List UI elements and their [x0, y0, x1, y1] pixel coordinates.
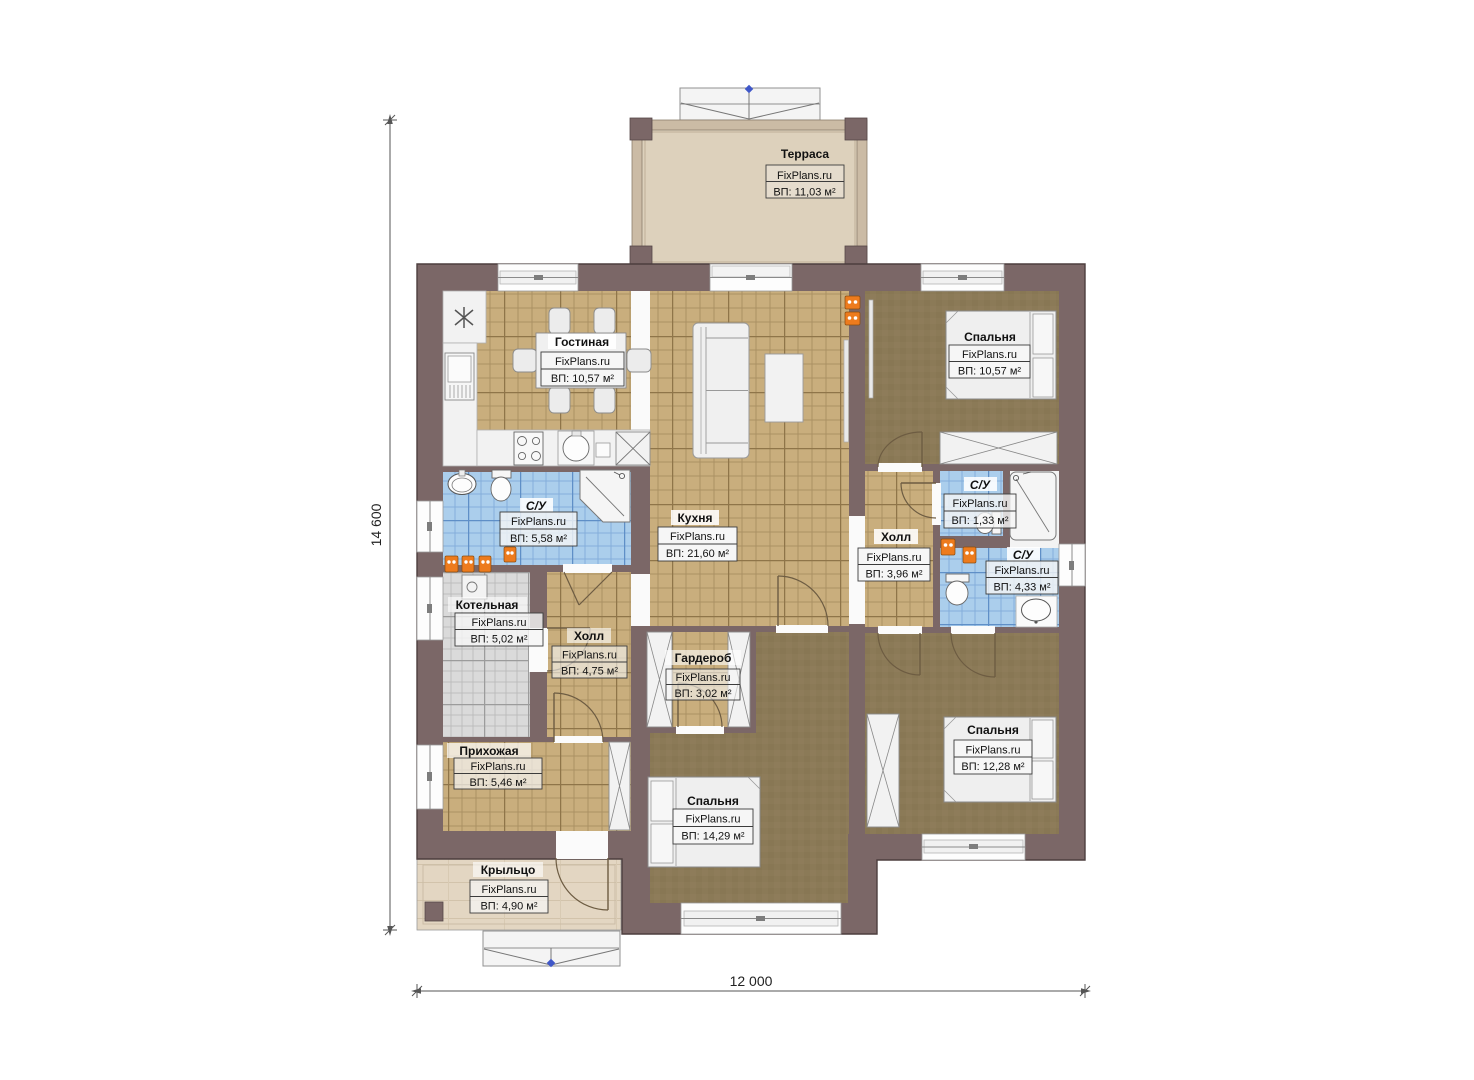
- svg-text:Крыльцо: Крыльцо: [481, 863, 536, 877]
- svg-text:ВП: 4,75 м²: ВП: 4,75 м²: [561, 666, 618, 678]
- svg-text:ВП: 1,33 м²: ВП: 1,33 м²: [951, 515, 1008, 527]
- svg-text:FixPlans.ru: FixPlans.ru: [470, 761, 525, 773]
- svg-text:ВП: 14,29 м²: ВП: 14,29 м²: [681, 831, 745, 843]
- svg-text:FixPlans.ru: FixPlans.ru: [866, 552, 921, 564]
- svg-text:Спальня: Спальня: [687, 794, 739, 808]
- svg-text:12 000: 12 000: [730, 973, 773, 989]
- svg-text:ВП: 21,60 м²: ВП: 21,60 м²: [666, 548, 730, 560]
- svg-text:Терраса: Терраса: [781, 147, 830, 161]
- svg-text:С/У: С/У: [526, 499, 547, 513]
- svg-text:FixPlans.ru: FixPlans.ru: [562, 650, 617, 662]
- svg-text:FixPlans.ru: FixPlans.ru: [962, 349, 1017, 361]
- svg-text:Холл: Холл: [574, 629, 604, 643]
- svg-text:FixPlans.ru: FixPlans.ru: [685, 814, 740, 826]
- svg-text:FixPlans.ru: FixPlans.ru: [670, 531, 725, 543]
- svg-text:ВП: 5,58 м²: ВП: 5,58 м²: [510, 533, 567, 545]
- svg-text:ВП: 12,28 м²: ВП: 12,28 м²: [961, 761, 1025, 773]
- svg-text:С/У: С/У: [1013, 548, 1034, 562]
- svg-text:Гостиная: Гостиная: [555, 335, 609, 349]
- svg-text:ВП: 3,02 м²: ВП: 3,02 м²: [674, 688, 731, 700]
- svg-text:Спальня: Спальня: [964, 330, 1016, 344]
- svg-text:ВП: 10,57 м²: ВП: 10,57 м²: [551, 373, 615, 385]
- svg-text:FixPlans.ru: FixPlans.ru: [994, 565, 1049, 577]
- svg-text:FixPlans.ru: FixPlans.ru: [481, 884, 536, 896]
- svg-text:FixPlans.ru: FixPlans.ru: [777, 170, 832, 182]
- svg-text:Холл: Холл: [881, 530, 911, 544]
- svg-text:Кухня: Кухня: [677, 511, 712, 525]
- svg-text:FixPlans.ru: FixPlans.ru: [675, 672, 730, 684]
- svg-text:Котельная: Котельная: [456, 598, 519, 612]
- svg-text:FixPlans.ru: FixPlans.ru: [555, 356, 610, 368]
- svg-text:С/У: С/У: [970, 478, 991, 492]
- svg-text:ВП: 4,33 м²: ВП: 4,33 м²: [993, 582, 1050, 594]
- svg-text:ВП: 11,03 м²: ВП: 11,03 м²: [773, 187, 836, 199]
- svg-text:ВП: 5,02 м²: ВП: 5,02 м²: [470, 634, 527, 646]
- svg-text:FixPlans.ru: FixPlans.ru: [471, 617, 526, 629]
- svg-text:ВП: 3,96 м²: ВП: 3,96 м²: [865, 569, 922, 581]
- svg-text:FixPlans.ru: FixPlans.ru: [965, 745, 1020, 757]
- svg-text:Гардероб: Гардероб: [675, 651, 732, 665]
- svg-text:14 600: 14 600: [368, 503, 384, 546]
- svg-text:Прихожая: Прихожая: [459, 744, 518, 758]
- svg-text:Спальня: Спальня: [967, 723, 1019, 737]
- svg-text:FixPlans.ru: FixPlans.ru: [511, 516, 566, 528]
- svg-text:FixPlans.ru: FixPlans.ru: [952, 498, 1007, 510]
- svg-text:ВП: 10,57 м²: ВП: 10,57 м²: [958, 366, 1022, 378]
- svg-text:ВП: 5,46 м²: ВП: 5,46 м²: [469, 777, 526, 789]
- svg-text:ВП: 4,90 м²: ВП: 4,90 м²: [480, 901, 537, 913]
